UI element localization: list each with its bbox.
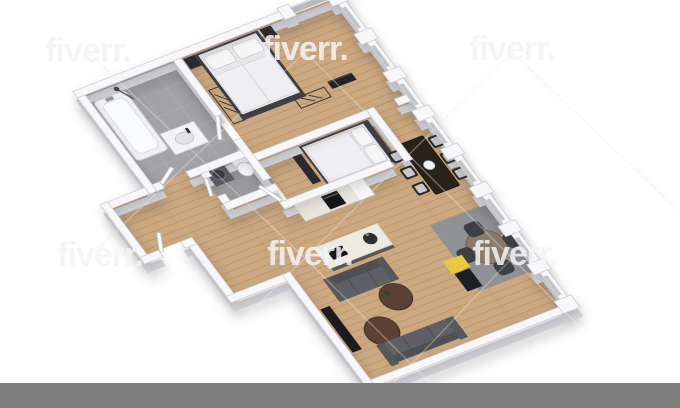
floor-plan-canvas: fiverr. fiverr. fiverr. fiverr. fiverr. … (0, 0, 680, 408)
watermark-text: fiverr. (262, 30, 348, 68)
floor-plan-render: fiverr. fiverr. fiverr. fiverr. fiverr. … (0, 0, 680, 408)
watermark-text: fiverr. (57, 236, 143, 274)
watermark-text: fiverr. (267, 235, 353, 273)
bottom-bar (0, 383, 680, 408)
watermark-text: fiverr. (469, 30, 555, 68)
watermark-text: fiverr. (472, 235, 558, 273)
watermark-text: fiverr. (45, 32, 131, 70)
